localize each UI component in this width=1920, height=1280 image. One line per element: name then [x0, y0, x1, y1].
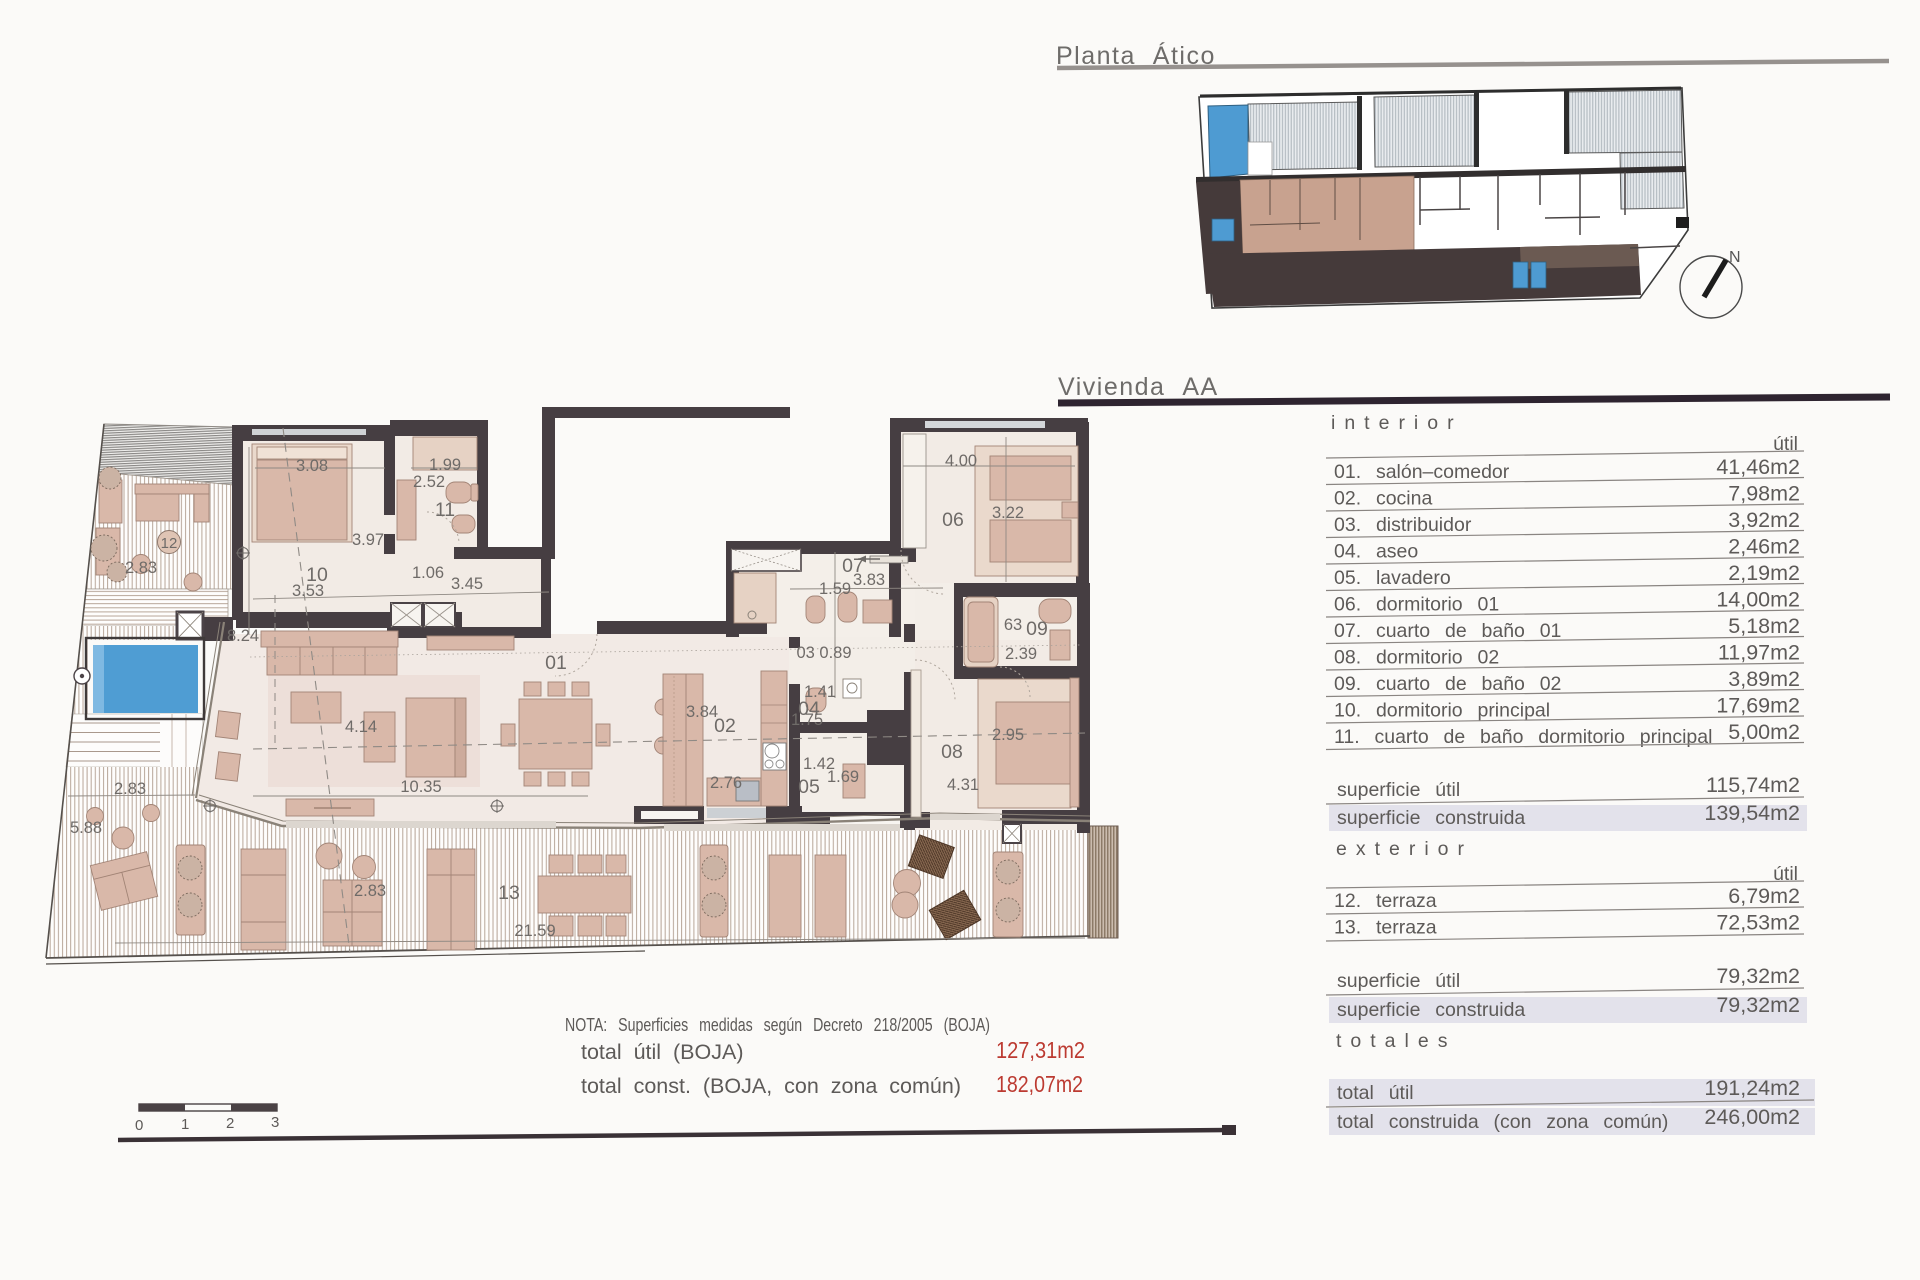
svg-text:N: N — [1729, 249, 1741, 266]
svg-text:3,89m2: 3,89m2 — [1728, 667, 1800, 691]
svg-text:09: 09 — [1026, 618, 1048, 640]
svg-text:41,46m2: 41,46m2 — [1716, 455, 1800, 479]
svg-text:01: 01 — [545, 652, 567, 674]
svg-text:10: 10 — [306, 564, 328, 586]
svg-text:10. dormitorio principal: 10. dormitorio principal — [1334, 700, 1550, 722]
svg-text:2.39: 2.39 — [1005, 645, 1037, 663]
svg-text:1.99: 1.99 — [429, 456, 461, 474]
svg-text:08. dormitorio 02: 08. dormitorio 02 — [1334, 647, 1499, 669]
svg-text:totales: totales — [1336, 1030, 1456, 1052]
svg-text:superficie útil: superficie útil — [1337, 970, 1460, 992]
svg-text:09. cuarto de baño 02: 09. cuarto de baño 02 — [1334, 673, 1561, 695]
svg-text:1.69: 1.69 — [827, 768, 859, 786]
svg-text:2.83: 2.83 — [354, 882, 386, 900]
svg-text:127,31m2: 127,31m2 — [996, 1037, 1085, 1063]
svg-text:79,32m2: 79,32m2 — [1716, 993, 1800, 1017]
svg-text:01. salón–comedor: 01. salón–comedor — [1334, 461, 1510, 483]
svg-text:superficie construida: superficie construida — [1337, 999, 1525, 1021]
svg-text:6,79m2: 6,79m2 — [1728, 884, 1800, 908]
svg-text:05: 05 — [798, 776, 820, 798]
svg-text:NOTA: Superficies medidas s: NOTA: Superficies medidas según Decreto … — [565, 1014, 990, 1035]
svg-text:12: 12 — [161, 535, 178, 552]
svg-text:07. cuarto de baño 01: 07. cuarto de baño 01 — [1334, 620, 1561, 642]
svg-text:2,19m2: 2,19m2 — [1728, 561, 1800, 585]
svg-text:2.52: 2.52 — [413, 473, 445, 491]
svg-text:1.06: 1.06 — [412, 564, 444, 582]
svg-text:11: 11 — [435, 499, 455, 521]
svg-text:79,32m2: 79,32m2 — [1716, 964, 1800, 988]
svg-text:03. distribuidor: 03. distribuidor — [1334, 514, 1472, 536]
svg-text:total útil: total útil — [1337, 1082, 1414, 1104]
svg-text:3.08: 3.08 — [296, 457, 328, 475]
svg-text:17,69m2: 17,69m2 — [1716, 694, 1800, 718]
svg-text:total útil (BOJA): total útil (BOJA) — [581, 1040, 744, 1064]
svg-text:3.97: 3.97 — [352, 531, 384, 549]
svg-text:07: 07 — [842, 555, 864, 577]
svg-text:superficie construida: superficie construida — [1337, 807, 1525, 829]
svg-text:2.95: 2.95 — [992, 726, 1024, 744]
svg-text:08: 08 — [941, 741, 963, 763]
svg-text:total construida (con zona: total construida (con zona común) — [1337, 1111, 1668, 1133]
svg-text:02. cocina: 02. cocina — [1334, 488, 1432, 510]
svg-text:2.83: 2.83 — [125, 559, 157, 577]
svg-text:63: 63 — [1004, 616, 1022, 634]
svg-text:3: 3 — [271, 1114, 279, 1131]
svg-text:139,54m2: 139,54m2 — [1704, 801, 1800, 825]
svg-text:7,98m2: 7,98m2 — [1728, 482, 1800, 506]
svg-text:11,97m2: 11,97m2 — [1718, 641, 1800, 665]
svg-text:4.00: 4.00 — [945, 452, 977, 470]
svg-text:06. dormitorio 01: 06. dormitorio 01 — [1334, 594, 1499, 616]
svg-text:5,00m2: 5,00m2 — [1728, 720, 1800, 744]
svg-text:8.24: 8.24 — [227, 627, 259, 645]
svg-text:2.76: 2.76 — [710, 774, 742, 792]
svg-text:72,53m2: 72,53m2 — [1716, 911, 1800, 935]
svg-text:1: 1 — [181, 1116, 189, 1133]
svg-text:182,07m2: 182,07m2 — [996, 1071, 1083, 1097]
svg-text:05. lavadero: 05. lavadero — [1334, 567, 1451, 589]
svg-text:191,24m2: 191,24m2 — [1704, 1076, 1800, 1100]
svg-text:115,74m2: 115,74m2 — [1706, 773, 1800, 797]
svg-text:4.31: 4.31 — [947, 776, 979, 794]
svg-text:04: 04 — [798, 698, 820, 720]
svg-text:total const. (BOJA, con zo: total const. (BOJA, con zona común) — [581, 1074, 961, 1098]
svg-text:02: 02 — [714, 715, 736, 737]
svg-text:246,00m2: 246,00m2 — [1704, 1105, 1800, 1129]
svg-text:2: 2 — [226, 1115, 234, 1132]
svg-text:3,92m2: 3,92m2 — [1728, 508, 1800, 532]
svg-text:Vivienda AA: Vivienda AA — [1058, 373, 1219, 401]
svg-text:5.88: 5.88 — [70, 819, 102, 837]
svg-text:2.83: 2.83 — [114, 780, 146, 798]
svg-text:12. terraza: 12. terraza — [1334, 890, 1437, 912]
svg-text:13: 13 — [498, 882, 520, 904]
svg-text:06: 06 — [942, 509, 964, 531]
svg-text:14,00m2: 14,00m2 — [1716, 588, 1800, 612]
svg-text:1.59: 1.59 — [819, 580, 851, 598]
svg-text:0: 0 — [135, 1117, 143, 1134]
svg-text:03 0.89: 03 0.89 — [796, 644, 851, 662]
svg-text:10.35: 10.35 — [400, 778, 441, 796]
svg-text:04. aseo: 04. aseo — [1334, 541, 1418, 563]
svg-text:superficie útil: superficie útil — [1337, 779, 1460, 801]
svg-text:interior: interior — [1331, 412, 1463, 434]
svg-text:2,46m2: 2,46m2 — [1728, 535, 1800, 559]
svg-text:5,18m2: 5,18m2 — [1728, 614, 1800, 638]
svg-text:3.22: 3.22 — [992, 504, 1024, 522]
svg-text:3.45: 3.45 — [451, 575, 483, 593]
svg-text:4.14: 4.14 — [345, 718, 377, 736]
svg-text:21.59: 21.59 — [514, 922, 555, 940]
svg-text:13. terraza: 13. terraza — [1334, 917, 1437, 939]
svg-text:exterior: exterior — [1336, 838, 1473, 860]
